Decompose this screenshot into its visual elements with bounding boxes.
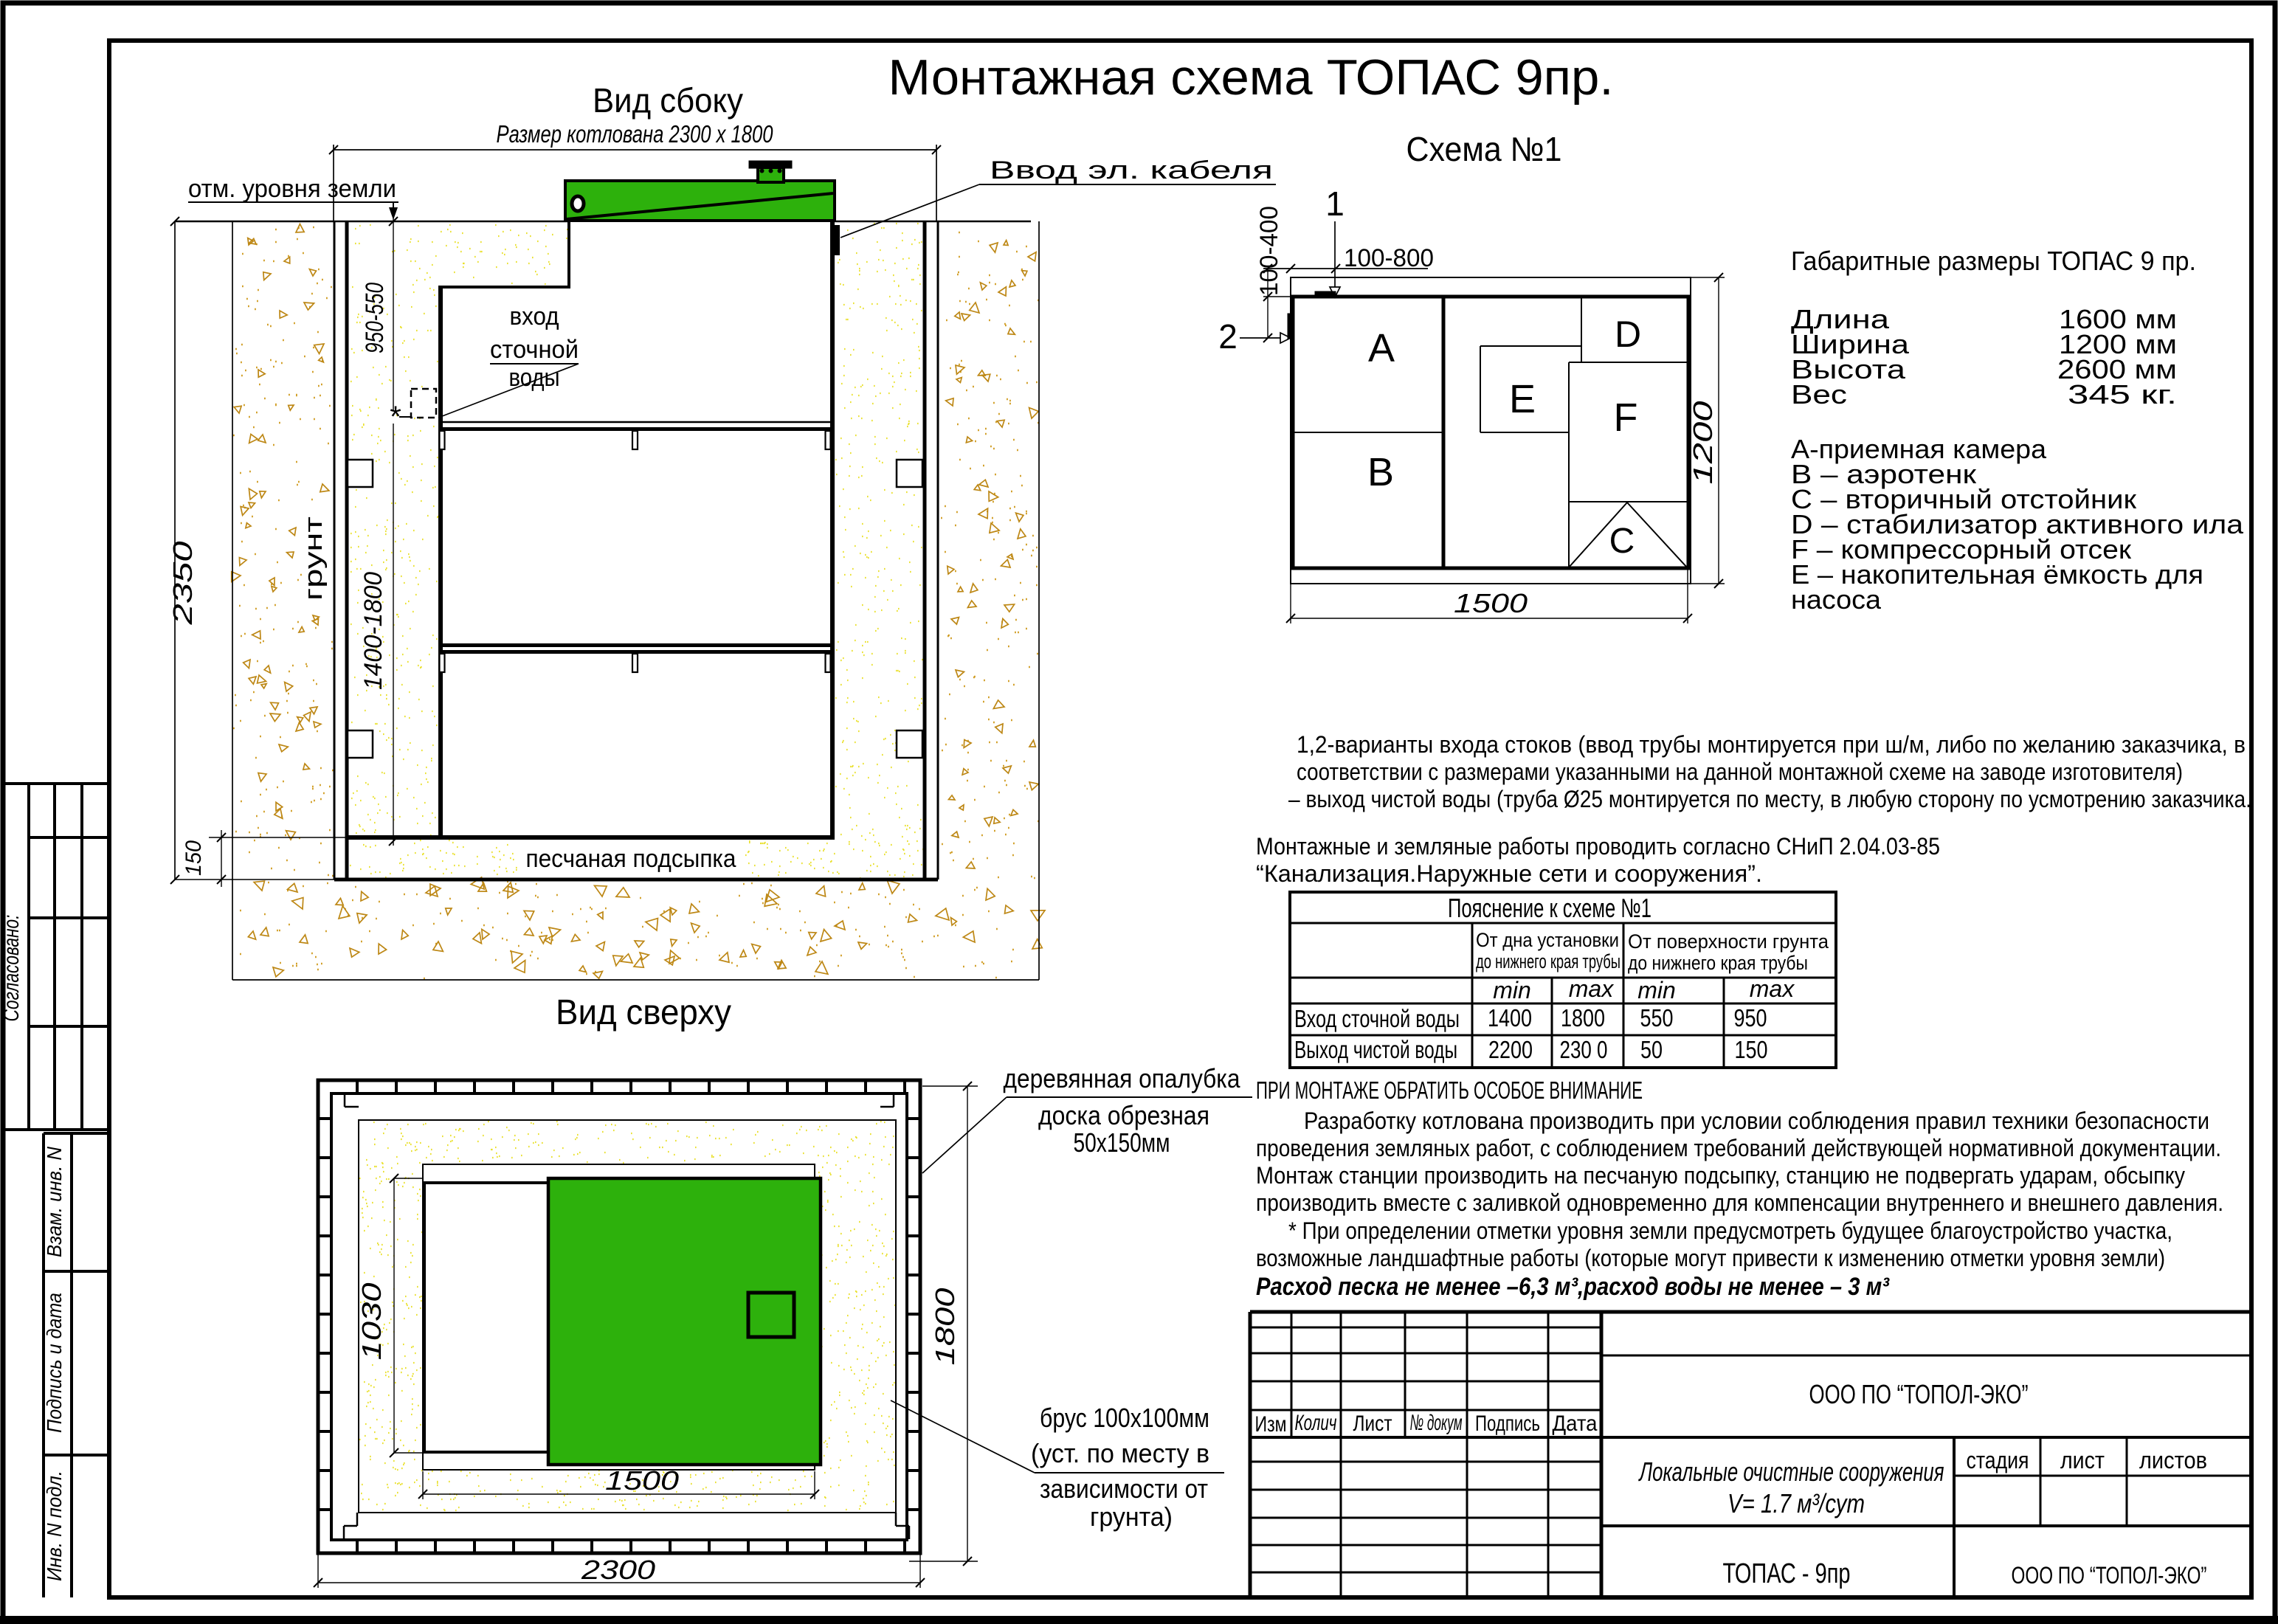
- svg-text:550: 550: [1640, 1004, 1674, 1032]
- svg-text:Монтажная схема ТОПАС 9пр.: Монтажная схема ТОПАС 9пр.: [888, 49, 1614, 106]
- svg-text:150: 150: [182, 840, 206, 876]
- svg-text:1800: 1800: [1561, 1004, 1605, 1032]
- svg-text:Подпись и дата: Подпись и дата: [43, 1293, 66, 1433]
- svg-text:* При определении отметки уров: * При определении отметки уровня земли п…: [1288, 1217, 2172, 1244]
- svg-text:Согласовано:: Согласовано:: [0, 915, 24, 1022]
- svg-text:брус 100х100мм: брус 100х100мм: [1040, 1403, 1209, 1433]
- svg-text:50: 50: [1640, 1036, 1663, 1063]
- svg-text:1400: 1400: [1488, 1004, 1532, 1032]
- svg-text:Вид сверху: Вид сверху: [556, 993, 731, 1032]
- svg-text:230 0: 230 0: [1560, 1036, 1608, 1063]
- svg-text:Схема №1: Схема №1: [1407, 130, 1562, 168]
- svg-text:Расход песка не менее –6,3 м³,: Расход песка не менее –6,3 м³,расход вод…: [1256, 1273, 1890, 1301]
- svg-text:“Канализация.Наружные сети и с: “Канализация.Наружные сети и сооружения”…: [1256, 860, 1762, 887]
- svg-text:возможные ландшафтные работы (: возможные ландшафтные работы (которые мо…: [1256, 1245, 2165, 1271]
- svg-text:соответствии с размерами указа: соответствии с размерами указанными на д…: [1297, 759, 2183, 785]
- svg-text:F: F: [1614, 395, 1638, 440]
- svg-text:1,2-варианты входа стоков (вв: 1,2-варианты входа стоков (ввод трубы мо…: [1297, 731, 2246, 758]
- svg-text:листов: листов: [2139, 1447, 2207, 1473]
- svg-text:1: 1: [1325, 184, 1345, 223]
- svg-text:насоса: насоса: [1791, 584, 1882, 615]
- svg-text:Дата: Дата: [1553, 1412, 1598, 1436]
- svg-text:2350: 2350: [168, 542, 198, 626]
- svg-text:min: min: [1637, 977, 1676, 1003]
- svg-text:C: C: [1609, 522, 1635, 561]
- svg-text:max: max: [1750, 975, 1795, 1002]
- svg-text:Размер котлована 2300 x 1800: Размер котлована 2300 x 1800: [497, 120, 773, 148]
- svg-text:Инв. N подл.: Инв. N подл.: [43, 1471, 66, 1581]
- svg-text:Взам. инв. N: Взам. инв. N: [43, 1146, 66, 1257]
- svg-text:ООО ПО “ТОПОЛ-ЭКО”: ООО ПО “ТОПОЛ-ЭКО”: [1809, 1379, 2029, 1409]
- svg-text:1800: 1800: [930, 1288, 960, 1366]
- svg-text:1200: 1200: [1688, 401, 1718, 485]
- svg-text:2: 2: [1218, 317, 1238, 356]
- svg-text:100-400: 100-400: [1255, 206, 1283, 296]
- svg-text:B: B: [1367, 450, 1394, 494]
- svg-text:345 кг.: 345 кг.: [2068, 379, 2177, 410]
- svg-text:ТОПАС - 9пр: ТОПАС - 9пр: [1723, 1558, 1851, 1589]
- svg-text:Вес: Вес: [1791, 379, 1847, 410]
- svg-text:1400-1800: 1400-1800: [359, 572, 387, 690]
- svg-text:Локальные очистные сооружения: Локальные очистные сооружения: [1638, 1457, 1944, 1487]
- svg-text:до нижнего края трубы: до нижнего края трубы: [1476, 950, 1621, 972]
- svg-text:до нижнего края трубы: до нижнего края трубы: [1628, 952, 1808, 974]
- svg-text:сточной: сточной: [490, 336, 579, 364]
- svg-text:Подпись: Подпись: [1475, 1412, 1540, 1436]
- svg-text:D: D: [1615, 314, 1641, 355]
- svg-text:лист: лист: [2060, 1447, 2105, 1473]
- svg-text:Разработку котлована производи: Разработку котлована производить при усл…: [1304, 1108, 2209, 1134]
- svg-text:V= 1.7 м³/сут: V= 1.7 м³/сут: [1728, 1488, 1865, 1518]
- svg-text:1500: 1500: [605, 1465, 679, 1496]
- svg-text:зависимости от: зависимости от: [1040, 1473, 1208, 1504]
- svg-text:(уст. по месту в: (уст. по месту в: [1031, 1438, 1209, 1468]
- svg-text:950: 950: [1734, 1004, 1767, 1032]
- svg-text:950-550: 950-550: [361, 283, 389, 353]
- svg-text:Вид сбоку: Вид сбоку: [593, 81, 743, 120]
- svg-text:*: *: [390, 401, 401, 433]
- svg-text:Монтаж станции производить на: Монтаж станции производить на песчаную п…: [1256, 1162, 2185, 1189]
- svg-text:вход: вход: [510, 303, 559, 331]
- svg-text:1500: 1500: [1454, 588, 1528, 618]
- svg-text:50х150мм: 50х150мм: [1074, 1127, 1170, 1158]
- svg-text:От дна установки: От дна установки: [1476, 929, 1619, 951]
- svg-text:Колич: Колич: [1295, 1411, 1337, 1435]
- svg-text:грунта): грунта): [1090, 1502, 1173, 1532]
- svg-text:доска обрезная: доска обрезная: [1038, 1100, 1209, 1130]
- svg-text:Пояснение к схеме №1: Пояснение к схеме №1: [1448, 893, 1651, 923]
- svg-text:Лист: Лист: [1353, 1412, 1392, 1436]
- svg-text:E: E: [1509, 377, 1536, 421]
- svg-text:– выход чистой воды (труба Ø25: – выход чистой воды (труба Ø25 монтирует…: [1288, 786, 2251, 812]
- svg-text:ООО ПО “ТОПОЛ-ЭКО”: ООО ПО “ТОПОЛ-ЭКО”: [2012, 1562, 2207, 1589]
- svg-text:производить вместе с заливкой: производить вместе с заливкой одновремен…: [1256, 1189, 2223, 1216]
- svg-text:150: 150: [1735, 1036, 1768, 1063]
- svg-text:стадия: стадия: [1967, 1447, 2029, 1473]
- svg-text:Ввод эл. кабеля: Ввод эл. кабеля: [990, 156, 1273, 184]
- svg-text:min: min: [1493, 977, 1531, 1003]
- svg-text:2300: 2300: [581, 1555, 655, 1585]
- svg-text:Монтажные и земляные работы пр: Монтажные и земляные работы проводить со…: [1256, 833, 1940, 860]
- svg-text:1030: 1030: [356, 1283, 387, 1361]
- svg-text:max: max: [1569, 975, 1614, 1002]
- svg-text:2200: 2200: [1488, 1036, 1533, 1063]
- svg-text:От поверхности грунта: От поверхности грунта: [1628, 930, 1829, 953]
- svg-text:проведения земляных работ, с с: проведения земляных работ, с соблюдением…: [1256, 1135, 2221, 1161]
- svg-text:Изм: Изм: [1255, 1412, 1287, 1437]
- svg-text:деревянная опалубка: деревянная опалубка: [1004, 1063, 1241, 1093]
- svg-text:Габаритные размеры ТОПАС 9 пр.: Габаритные размеры ТОПАС 9 пр.: [1791, 246, 2196, 276]
- svg-text:отм. уровня земли: отм. уровня земли: [188, 175, 396, 203]
- svg-text:Выход чистой воды: Выход чистой воды: [1294, 1036, 1457, 1063]
- svg-text:грунт: грунт: [300, 516, 328, 601]
- svg-text:Вход сточной воды: Вход сточной воды: [1294, 1005, 1460, 1032]
- svg-text:песчаная подсыпка: песчаная подсыпка: [526, 845, 736, 873]
- svg-text:№ докум: № докум: [1410, 1411, 1463, 1435]
- svg-text:A: A: [1368, 326, 1395, 370]
- svg-text:ПРИ МОНТАЖЕ ОБРАТИТЬ ОСОБОЕ ВН: ПРИ МОНТАЖЕ ОБРАТИТЬ ОСОБОЕ ВНИМАНИЕ: [1256, 1077, 1643, 1104]
